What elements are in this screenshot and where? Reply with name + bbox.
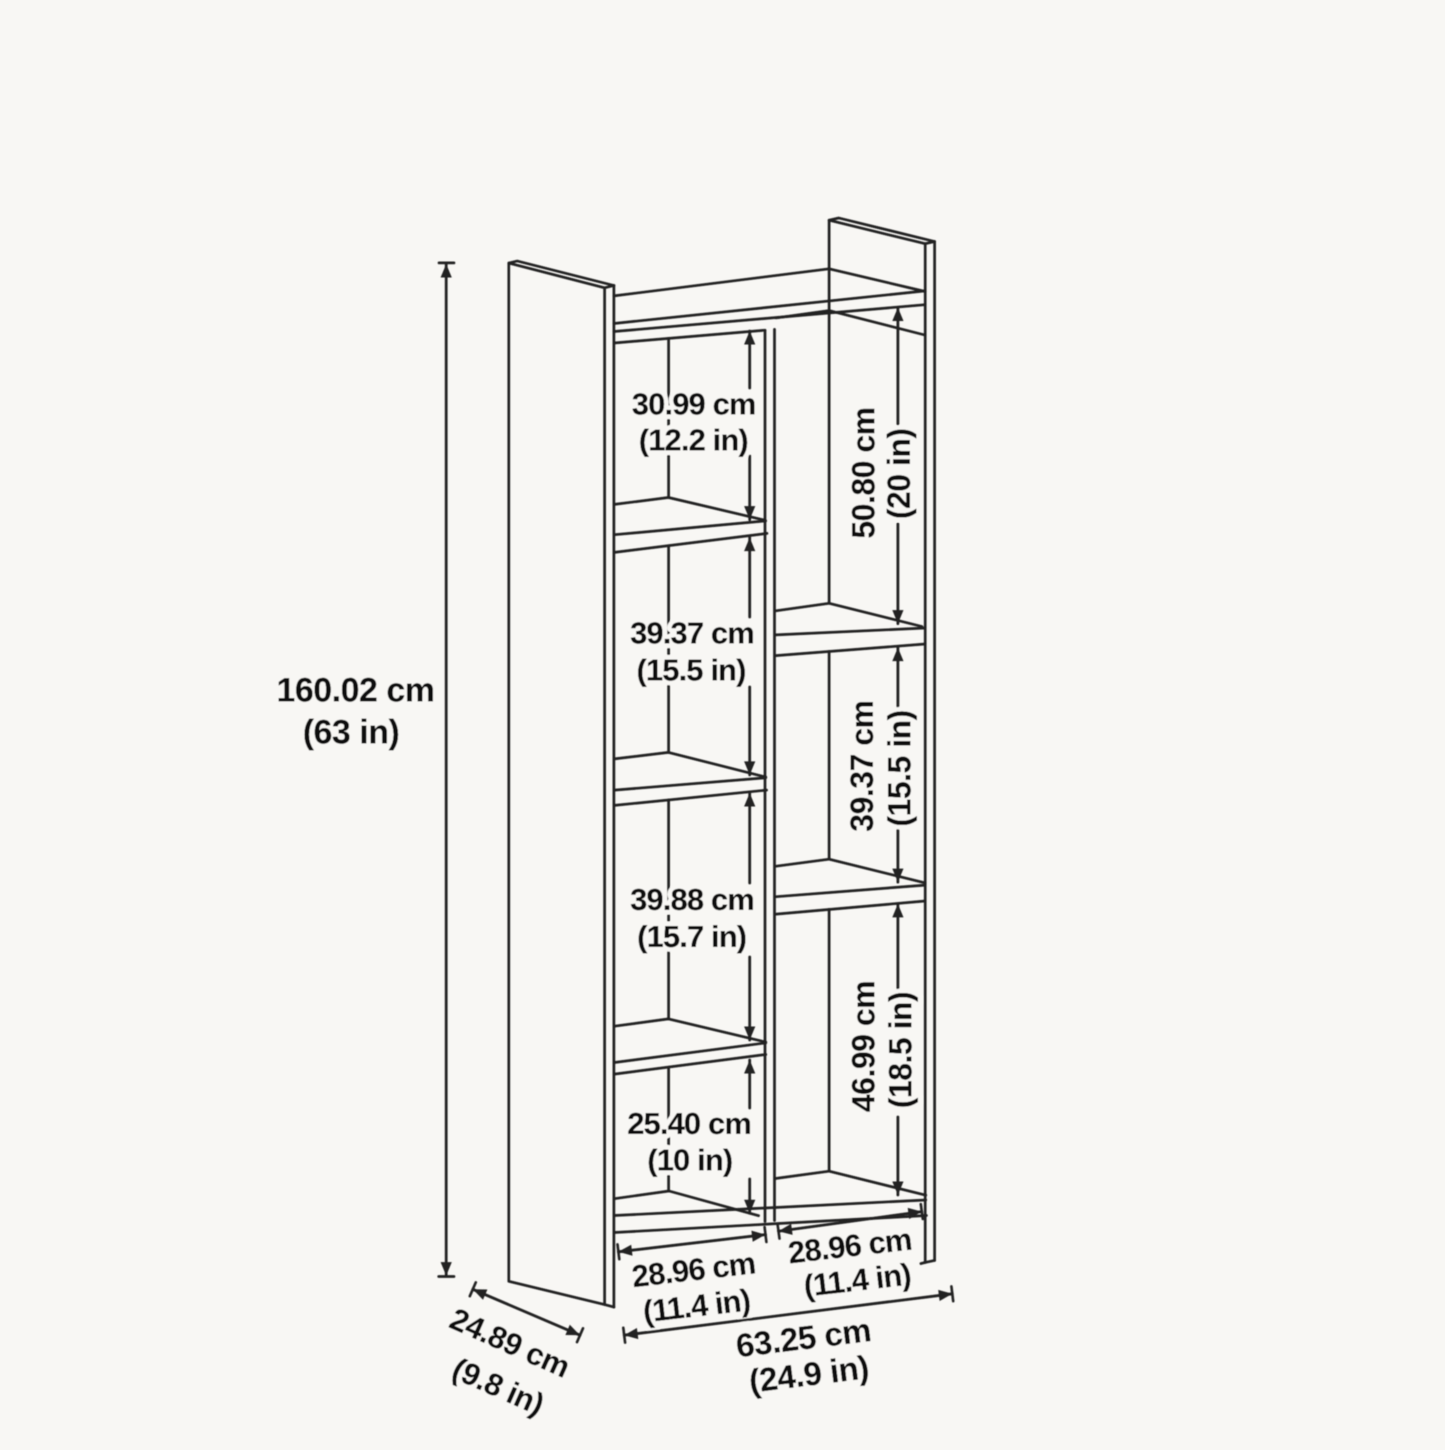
svg-text:(63 in): (63 in) xyxy=(303,714,400,752)
svg-text:(15.7 in): (15.7 in) xyxy=(637,919,746,954)
svg-text:(20 in): (20 in) xyxy=(881,428,917,519)
svg-text:30.99 cm: 30.99 cm xyxy=(632,387,756,422)
svg-text:(10 in): (10 in) xyxy=(647,1143,732,1178)
svg-text:25.40 cm: 25.40 cm xyxy=(627,1106,751,1141)
svg-text:(18.5 in): (18.5 in) xyxy=(882,992,918,1108)
svg-text:(15.5 in): (15.5 in) xyxy=(636,653,745,688)
svg-text:46.99 cm: 46.99 cm xyxy=(845,981,881,1112)
svg-text:(15.5 in): (15.5 in) xyxy=(882,710,918,826)
svg-text:160.02 cm: 160.02 cm xyxy=(276,671,434,709)
svg-text:39.88 cm: 39.88 cm xyxy=(630,882,754,917)
svg-text:(12.2 in): (12.2 in) xyxy=(639,423,748,458)
svg-text:39.37 cm: 39.37 cm xyxy=(630,616,754,651)
svg-text:39.37 cm: 39.37 cm xyxy=(844,700,880,831)
svg-text:50.80 cm: 50.80 cm xyxy=(845,407,881,538)
